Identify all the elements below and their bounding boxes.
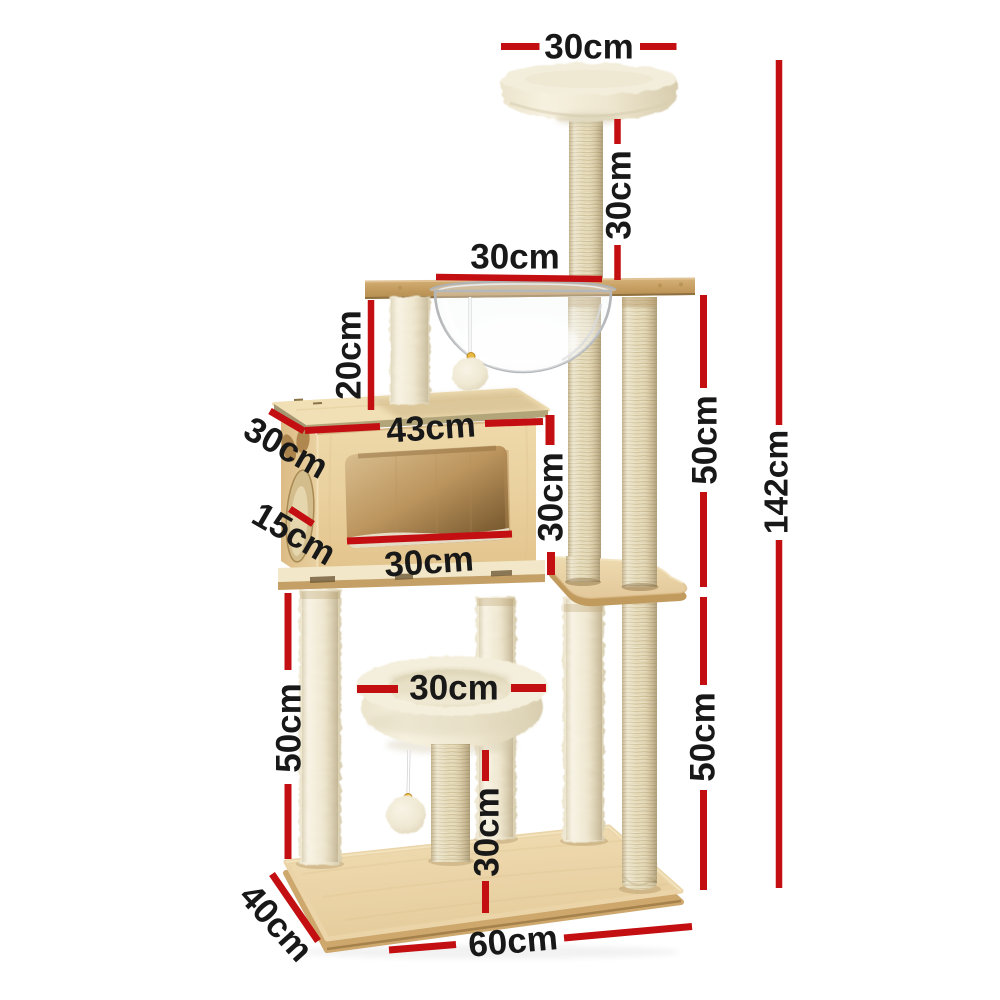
svg-text:20cm: 20cm [330,310,369,400]
svg-text:43cm: 43cm [385,405,477,450]
svg-text:30cm: 30cm [383,539,475,584]
svg-text:50cm: 50cm [686,395,725,485]
svg-text:30cm: 30cm [600,150,639,240]
svg-text:30cm: 30cm [409,669,499,708]
svg-text:50cm: 50cm [270,683,309,773]
svg-text:60cm: 60cm [467,918,560,965]
svg-text:30cm: 30cm [544,28,634,67]
svg-text:30cm: 30cm [470,238,560,277]
svg-text:30cm: 30cm [532,452,571,542]
svg-text:50cm: 50cm [684,692,723,782]
svg-text:142cm: 142cm [759,430,796,534]
svg-text:30cm: 30cm [468,787,507,877]
